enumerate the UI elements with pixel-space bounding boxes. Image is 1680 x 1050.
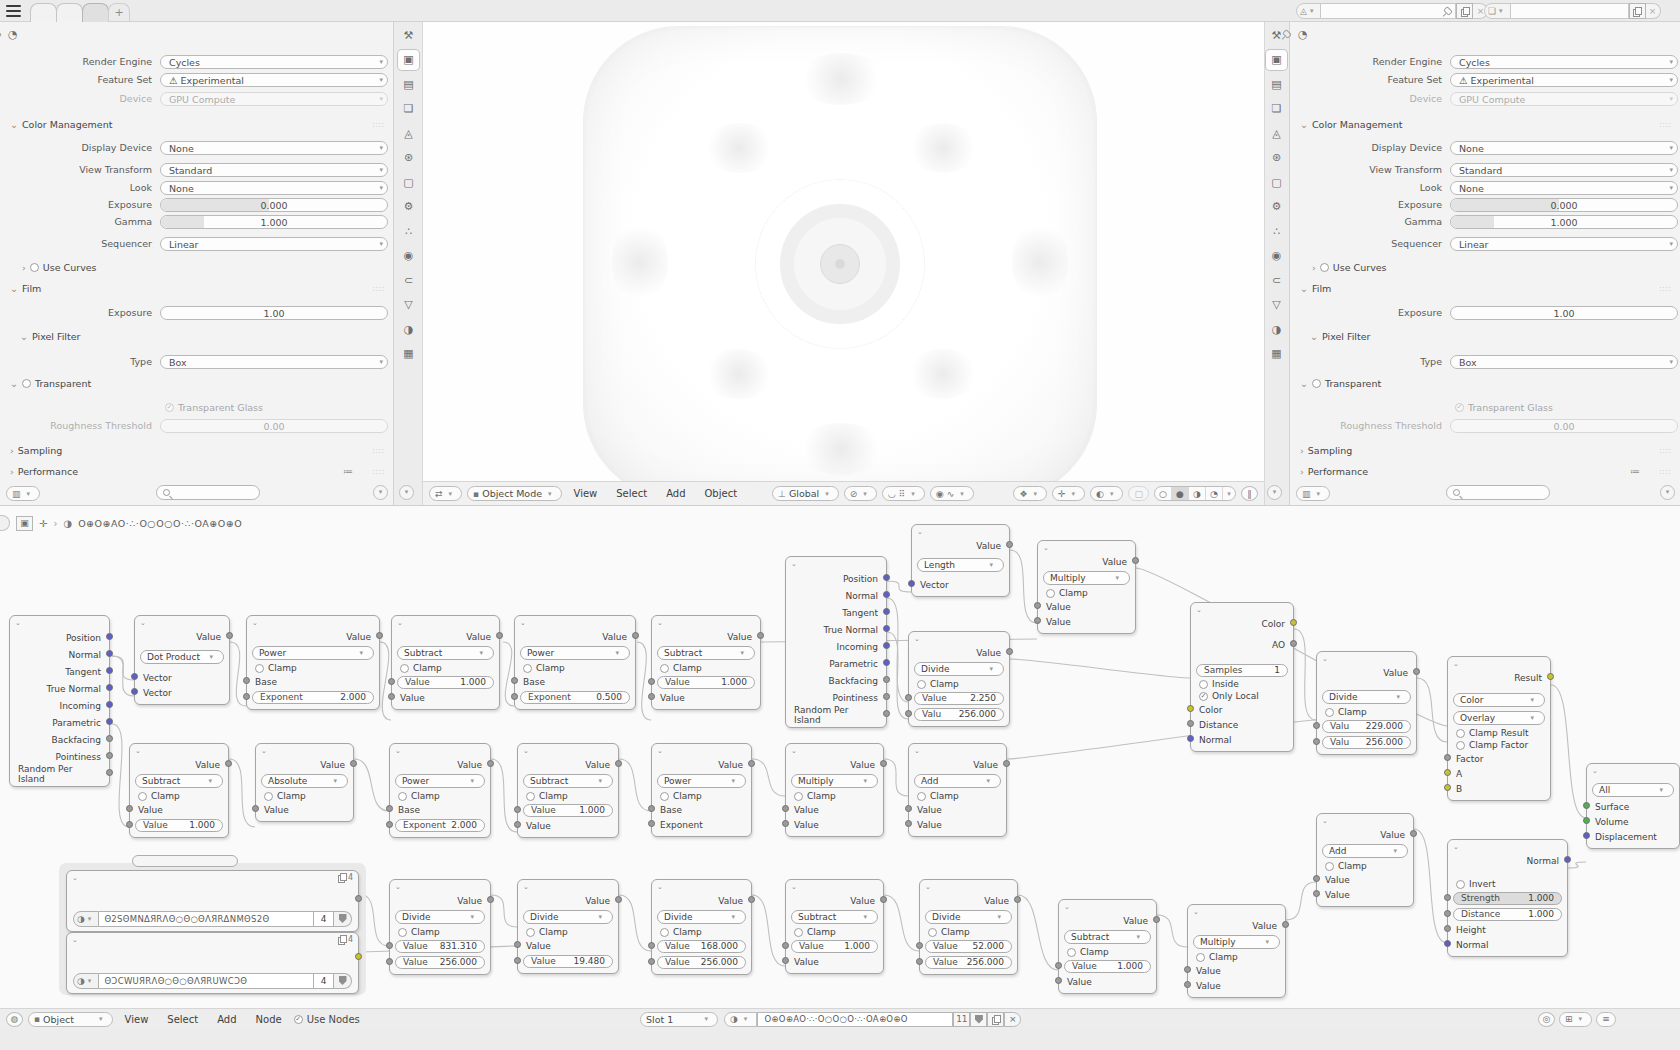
socket[interactable] (905, 694, 912, 701)
operation-dropdown[interactable]: Absolute▾ (261, 774, 348, 788)
options-button[interactable]: ≡ (1596, 1012, 1616, 1027)
checkbox[interactable] (1046, 589, 1055, 598)
checkbox[interactable] (526, 792, 535, 801)
checkbox[interactable] (1199, 680, 1208, 689)
section-header-color-management[interactable]: ⌄Color Management (1300, 119, 1402, 130)
socket[interactable] (648, 958, 655, 965)
collapse-chevron-icon[interactable]: ⌄ (523, 883, 529, 891)
user-count-badge[interactable]: 4 (314, 973, 334, 989)
socket[interactable] (1410, 830, 1417, 837)
section-header-transparent[interactable]: ⌄Transparent (10, 378, 91, 389)
operation-dropdown[interactable]: Subtract▾ (791, 910, 878, 924)
socket[interactable] (1187, 705, 1194, 712)
tab-object-data[interactable]: ▽ (1266, 295, 1287, 315)
value-field[interactable]: Value168.000 (657, 940, 746, 953)
checkbox[interactable] (138, 792, 147, 801)
section-header-sampling[interactable]: ›Sampling (1300, 445, 1352, 456)
socket[interactable] (1444, 925, 1451, 932)
socket[interactable] (350, 760, 357, 767)
operation-dropdown[interactable]: Subtract▾ (397, 646, 494, 660)
socket[interactable] (883, 625, 890, 632)
view-transform-field[interactable]: Standard▾ (1450, 163, 1678, 177)
collapse-chevron-icon[interactable]: ⌄ (72, 874, 78, 882)
proportional-group[interactable]: ◉∿▾ (930, 486, 974, 501)
use-curves-row[interactable]: ›Use Curves (22, 262, 97, 273)
socket[interactable] (1583, 832, 1590, 839)
pin-icon[interactable] (1282, 30, 1291, 39)
socket[interactable] (883, 659, 890, 666)
device-field[interactable]: GPU Compute▾ (1450, 92, 1678, 106)
collapse-chevron-icon[interactable]: ⌄ (1453, 843, 1459, 851)
operation-dropdown[interactable]: Length▾ (917, 558, 1004, 572)
node-header[interactable]: ⌄ (652, 880, 751, 893)
node-header[interactable]: ⌄4 (67, 933, 358, 946)
socket[interactable] (106, 769, 113, 776)
shading-options-chevron[interactable]: ▾ (1223, 487, 1235, 500)
display-device-field[interactable]: None▾ (1450, 141, 1678, 155)
socket[interactable] (1444, 754, 1451, 761)
collapse-chevron-icon[interactable]: ⌄ (1592, 767, 1598, 775)
math-node[interactable]: ⌄ValuePower▾ClampBaseExponent0.500 (514, 615, 636, 710)
material-name-field[interactable]: O⊕O⊕AO·∴·O○O○O·∴·OA⊕O⊕O (757, 1012, 953, 1027)
value-field[interactable]: Value1.000 (791, 940, 878, 953)
clamp-checkbox-row[interactable]: Clamp (515, 662, 635, 674)
socket[interactable] (1184, 966, 1191, 973)
operation-dropdown[interactable]: Power▾ (252, 646, 374, 660)
view-transform-field[interactable]: Standard▾ (160, 163, 388, 177)
socket[interactable] (106, 701, 113, 708)
tab-object[interactable]: ▢ (398, 172, 419, 192)
exposure-field[interactable]: 0.000 (160, 198, 388, 212)
tab-scene[interactable]: ◬ (1266, 123, 1287, 143)
workspace-tab-1[interactable] (30, 3, 57, 22)
bump-node[interactable]: ⌄NormalInvertStrength1.000Distance1.000H… (1447, 839, 1568, 957)
tab-scene[interactable]: ◬ (398, 123, 419, 143)
checkbox-row[interactable]: ✓Transparent Glass (1455, 402, 1553, 413)
value-field[interactable]: Valu256.000 (914, 708, 1004, 721)
collapse-chevron-icon[interactable]: ⌄ (15, 619, 21, 627)
math-node[interactable]: ⌄ValueMultiply▾ClampValueValue (1037, 540, 1136, 634)
operation-dropdown[interactable]: Add▾ (914, 774, 1001, 788)
viewport-3d[interactable]: ⇄▾ ▪Object Mode▾ View Select Add Object … (423, 22, 1264, 505)
value-field[interactable]: Strength1.000 (1453, 892, 1562, 905)
node-header[interactable]: ⌄ (515, 616, 635, 629)
menu-select[interactable]: Select (609, 488, 654, 499)
socket[interactable] (648, 805, 655, 812)
tab-output[interactable]: ▤ (398, 74, 419, 94)
hamburger-menu-icon[interactable] (6, 5, 21, 17)
value-field[interactable]: Value831.310 (395, 940, 485, 953)
gamma-field[interactable]: 1.000 (160, 215, 388, 229)
socket[interactable] (905, 805, 912, 812)
checkbox[interactable] (660, 928, 669, 937)
copy-view-layer-button[interactable] (1629, 3, 1646, 19)
operation-dropdown[interactable]: Power▾ (657, 774, 746, 788)
socket[interactable] (905, 710, 912, 717)
checkbox[interactable] (1067, 948, 1076, 957)
editor-type-button[interactable]: ▥▾ (6, 486, 40, 501)
socket[interactable] (782, 805, 789, 812)
socket[interactable] (106, 650, 113, 657)
node-header[interactable]: ⌄ (256, 744, 353, 757)
collapse-chevron-icon[interactable]: ⌄ (140, 619, 146, 627)
socket[interactable] (1187, 735, 1194, 742)
socket[interactable] (916, 958, 923, 965)
checkbox[interactable] (400, 664, 409, 673)
collapse-chevron-icon[interactable]: ⌄ (72, 936, 78, 944)
pivot-dropdown[interactable]: ⊘▾ (844, 486, 877, 501)
checkbox[interactable] (1196, 953, 1205, 962)
socket[interactable] (386, 942, 393, 949)
list-icon[interactable]: ≔ (343, 466, 353, 477)
math-node[interactable]: ⌄ValueDivide▾ClampValue831.310Value256.0… (389, 879, 491, 975)
tab-world[interactable]: ⊛ (1266, 148, 1287, 168)
socket[interactable] (1564, 856, 1571, 863)
collapse-chevron-icon[interactable]: ⌄ (520, 619, 526, 627)
node-header[interactable]: ⌄ (390, 880, 490, 893)
collapse-chevron-icon[interactable]: ⌄ (914, 635, 920, 643)
socket[interactable] (1313, 738, 1320, 745)
checkbox[interactable] (398, 792, 407, 801)
use-nodes-checkbox[interactable]: ✓Use Nodes (294, 1014, 360, 1025)
clamp-checkbox-row[interactable]: Clamp (1059, 946, 1156, 958)
editor-type-button[interactable]: ⇄▾ (429, 486, 462, 501)
value-field[interactable]: Distance1.000 (1453, 908, 1562, 921)
collapse-chevron-icon[interactable]: ⌄ (395, 883, 401, 891)
operation-dropdown[interactable]: Multiply▾ (1193, 935, 1280, 949)
operation-dropdown[interactable]: Divide▾ (1322, 690, 1411, 704)
gizmos-button[interactable]: ✛▾ (1052, 486, 1085, 501)
socket[interactable] (386, 805, 393, 812)
snap-group[interactable]: ◡⠿▾ (882, 486, 925, 501)
collapse-chevron-icon[interactable]: ⌄ (925, 883, 931, 891)
section-header-pixel-filter[interactable]: ⌄Pixel Filter (20, 331, 81, 342)
node-header[interactable]: ⌄ (1059, 900, 1156, 913)
math-node[interactable]: ⌄ValueAbsolute▾ClampValue (255, 743, 354, 822)
checkbox[interactable]: ✓ (1455, 403, 1464, 412)
clamp-checkbox-row[interactable]: Clamp Factor (1448, 739, 1550, 751)
operation-dropdown[interactable]: Overlay▾ (1453, 711, 1545, 725)
socket[interactable] (1282, 921, 1289, 928)
socket[interactable] (648, 820, 655, 827)
socket[interactable] (782, 942, 789, 949)
socket[interactable] (514, 941, 521, 948)
clamp-checkbox-row[interactable]: Clamp (786, 926, 883, 938)
socket[interactable] (131, 688, 138, 695)
node-header[interactable]: ⌄ (1188, 905, 1285, 918)
node-header[interactable]: ⌄ (909, 632, 1009, 645)
exposure-field[interactable]: 0.000 (1450, 198, 1678, 212)
socket[interactable] (226, 632, 233, 639)
collapse-chevron-icon[interactable]: ⌄ (1064, 903, 1070, 911)
section-header-sampling[interactable]: ›Sampling (10, 445, 62, 456)
node-header[interactable]: ⌄ (786, 880, 883, 893)
value-field[interactable]: Value256.000 (657, 956, 746, 969)
datablock-name-field[interactable]: ΘƆCWUЯRΛΘ○Θ○ΘΛЯRUWCƆΘ (99, 973, 314, 989)
checkbox[interactable] (928, 928, 937, 937)
socket[interactable] (1547, 673, 1554, 680)
socket[interactable] (1014, 896, 1021, 903)
socket[interactable] (386, 958, 393, 965)
checkbox[interactable] (1456, 729, 1465, 738)
socket[interactable] (1184, 981, 1191, 988)
socket[interactable] (106, 735, 113, 742)
socket[interactable] (106, 633, 113, 640)
socket[interactable] (880, 896, 887, 903)
node-header[interactable]: ⌄ (130, 744, 228, 757)
section-checkbox[interactable] (1312, 379, 1321, 388)
node-header[interactable]: ⌄ (390, 744, 490, 757)
node-header[interactable]: ⌄ (920, 880, 1017, 893)
node-header[interactable]: ⌄ (1587, 764, 1679, 777)
socket[interactable] (487, 760, 494, 767)
socket[interactable] (1583, 802, 1590, 809)
shader-context-dropdown[interactable]: ▪Object▾ (28, 1012, 113, 1027)
copy-scene-button[interactable] (1456, 3, 1473, 19)
panel-options-button[interactable]: ▾ (373, 485, 388, 500)
socket[interactable] (883, 642, 890, 649)
menu-view[interactable]: View (567, 488, 605, 499)
operation-dropdown[interactable]: Divide▾ (395, 910, 485, 924)
collapse-chevron-icon[interactable]: ⌄ (1453, 660, 1459, 668)
socket[interactable] (1444, 910, 1451, 917)
socket[interactable] (1006, 541, 1013, 548)
node-header[interactable]: ⌄ (652, 744, 751, 757)
socket[interactable] (1006, 648, 1013, 655)
collapse-chevron-icon[interactable]: ⌄ (657, 619, 663, 627)
value-field[interactable]: Value19.480 (523, 955, 613, 968)
snap-button[interactable]: ◎ (1538, 1012, 1555, 1027)
socket[interactable] (487, 896, 494, 903)
operation-dropdown[interactable]: All▾ (1592, 783, 1674, 797)
clamp-checkbox-row[interactable]: Clamp (1188, 951, 1285, 963)
shader-node-editor[interactable]: ▣ ✛ › ◑ O⊕O⊕AO·∴·O○O○O·∴·OA⊕O⊕O ⌄Positio… (0, 505, 1680, 1029)
socket[interactable] (883, 693, 890, 700)
socket[interactable] (1444, 784, 1451, 791)
pin-icon[interactable] (1443, 7, 1452, 16)
socket[interactable] (1313, 722, 1320, 729)
section-header-performance[interactable]: ›Performance (1300, 466, 1368, 477)
math-node[interactable]: ⌄ValueDivide▾ClampValue168.000Value256.0… (651, 879, 752, 975)
socket[interactable] (883, 710, 890, 717)
node-header[interactable]: ⌄ (786, 557, 886, 570)
value-field[interactable]: Value52.000 (925, 940, 1012, 953)
clamp-checkbox-row[interactable]: ✓Only Local (1191, 690, 1293, 702)
scene-name-field[interactable] (1321, 3, 1456, 19)
scene-selector[interactable]: ◬▾ × (1296, 3, 1488, 19)
node-header[interactable]: ⌄ (392, 616, 499, 629)
socket[interactable] (1290, 619, 1297, 626)
socket[interactable] (1444, 769, 1451, 776)
tab-modifiers[interactable]: ⚙ (398, 197, 419, 217)
clamp-checkbox-row[interactable]: Clamp (652, 662, 760, 674)
clamp-checkbox-row[interactable]: Clamp (1317, 706, 1416, 718)
checkbox[interactable] (1325, 708, 1334, 717)
checkbox[interactable] (526, 928, 535, 937)
math-node[interactable]: ⌄ValueMultiply▾ClampValueValue (1187, 904, 1286, 998)
collapse-chevron-icon[interactable]: ⌄ (914, 747, 920, 755)
operation-dropdown[interactable]: Power▾ (395, 774, 485, 788)
socket[interactable] (748, 896, 755, 903)
checkbox[interactable] (264, 792, 273, 801)
feature-set-field[interactable]: ⚠ Experimental▾ (160, 73, 388, 87)
tab-material[interactable]: ◑ (398, 319, 419, 339)
tab-world[interactable]: ⊛ (398, 148, 419, 168)
math-node[interactable]: ⌄ValuePower▾ClampBaseExponent (651, 743, 752, 837)
geometry-node[interactable]: ⌄PositionNormalTangentTrue NormalIncomin… (9, 615, 110, 787)
tab-object-data[interactable]: ▽ (398, 295, 419, 315)
clamp-checkbox-row[interactable]: Clamp (390, 926, 490, 938)
socket[interactable] (514, 821, 521, 828)
clamp-checkbox-row[interactable]: Clamp (1317, 860, 1413, 872)
operation-dropdown[interactable]: Divide▾ (523, 910, 613, 924)
socket[interactable] (1055, 977, 1062, 984)
value-field[interactable]: Value1.000 (135, 819, 223, 832)
menu-view[interactable]: View (118, 1014, 156, 1025)
node-header[interactable]: ⌄ (247, 616, 379, 629)
operation-dropdown[interactable]: Multiply▾ (1043, 571, 1130, 585)
socket[interactable] (131, 673, 138, 680)
socket[interactable] (1034, 602, 1041, 609)
socket[interactable] (243, 693, 250, 700)
operation-dropdown[interactable]: Multiply▾ (791, 774, 878, 788)
node-header[interactable]: ⌄ (786, 744, 883, 757)
clamp-checkbox-row[interactable]: Clamp (390, 790, 490, 802)
node-header[interactable]: ⌄ (652, 616, 760, 629)
section-header-performance[interactable]: ›Performance (10, 466, 78, 477)
checkbox[interactable] (1456, 880, 1465, 889)
ambient-occlusion-node[interactable]: ⌄ColorAOSamples1Inside✓Only LocalColorDi… (1190, 602, 1294, 752)
node-canvas[interactable]: ⌄PositionNormalTangentTrue NormalIncomin… (0, 506, 1680, 1009)
mix-color-node[interactable]: ⌄ResultColor▾Overlay▾Clamp ResultClamp F… (1447, 656, 1551, 801)
socket[interactable] (511, 677, 518, 684)
socket[interactable] (1444, 894, 1451, 901)
value-field[interactable]: Exponent2.000 (252, 691, 374, 704)
node-header[interactable]: ⌄ (135, 616, 229, 629)
collapse-chevron-icon[interactable]: ⌄ (523, 747, 529, 755)
value-field[interactable]: Value1.000 (523, 804, 613, 817)
checkbox[interactable] (794, 928, 803, 937)
view-layer-selector[interactable]: ❏▾ × (1484, 3, 1661, 19)
section-header-film[interactable]: ⌄Film (1300, 283, 1331, 294)
node-header[interactable]: ⌄ (1191, 603, 1293, 616)
math-node[interactable]: ⌄ValueSubtract▾ClampValue1.000Value (391, 615, 500, 710)
section-header-film[interactable]: ⌄Film (10, 283, 41, 294)
checkbox[interactable]: ✓ (165, 403, 174, 412)
socket[interactable] (1187, 720, 1194, 727)
operation-dropdown[interactable]: Divide▾ (914, 662, 1004, 676)
pause-button[interactable]: ‖ (1241, 486, 1258, 501)
socket[interactable] (908, 580, 915, 587)
socket[interactable] (1583, 817, 1590, 824)
value-field[interactable]: Value1.000 (1064, 960, 1151, 973)
shading-rendered-button[interactable]: ◔ (1206, 487, 1223, 500)
gamma-field[interactable]: 1.000 (1450, 215, 1678, 229)
clamp-checkbox-row[interactable]: Clamp (652, 926, 751, 938)
device-field[interactable]: GPU Compute▾ (160, 92, 388, 106)
tab-render[interactable]: ▣ (1266, 50, 1287, 70)
roughness-threshold-field[interactable]: 0.00 (1450, 419, 1678, 433)
image-datablock-node[interactable]: ⌄4◑▾ΘƆCWUЯRΛΘ○Θ○ΘΛЯRUWCƆΘ4 (66, 932, 359, 994)
editor-type-button[interactable]: ◍ (6, 1012, 23, 1027)
strip-collapse-button[interactable]: ▾ (1267, 485, 1282, 500)
clamp-checkbox-row[interactable]: Clamp (652, 790, 751, 802)
clamp-checkbox-row[interactable]: Clamp (920, 926, 1017, 938)
socket[interactable] (225, 760, 232, 767)
checkbox[interactable] (255, 664, 264, 673)
node-header[interactable]: ⌄ (10, 616, 109, 629)
image-datablock-node[interactable]: ⌄4◑▾Θ2SΘMNΔЯRΛΘ○Θ○ΘΛЯRΔNMΘS2Θ4 (66, 870, 359, 932)
socket[interactable] (782, 957, 789, 964)
node-header[interactable]: ⌄ (518, 744, 618, 757)
collapse-chevron-icon[interactable]: ⌄ (657, 883, 663, 891)
value-field[interactable]: Exponent2.000 (395, 819, 485, 832)
tab-object[interactable]: ▢ (1266, 172, 1287, 192)
shading-wireframe-button[interactable]: ○ (1155, 487, 1172, 500)
render-engine-field[interactable]: Cycles▾ (160, 55, 388, 69)
socket[interactable] (1132, 557, 1139, 564)
math-node[interactable]: ⌄ValueAdd▾ClampValueValue (1316, 813, 1414, 907)
clamp-checkbox-row[interactable]: Clamp (909, 678, 1009, 690)
socket[interactable] (883, 676, 890, 683)
socket[interactable] (1153, 916, 1160, 923)
value-field[interactable]: Valu256.000 (1322, 736, 1411, 749)
math-node[interactable]: ⌄ValueSubtract▾ClampValue1.000Value (651, 615, 761, 710)
clamp-checkbox-row[interactable]: Inside (1191, 678, 1293, 690)
collapse-chevron-icon[interactable]: ⌄ (917, 528, 923, 536)
value-field[interactable]: Exponent0.500 (520, 691, 630, 704)
add-workspace-tab[interactable]: + (108, 3, 130, 22)
menu-select[interactable]: Select (160, 1014, 205, 1025)
type-field[interactable]: Box▾ (160, 355, 388, 369)
tab-modifiers[interactable]: ⚙ (1266, 197, 1287, 217)
clamp-checkbox-row[interactable]: Clamp (256, 790, 353, 802)
collapse-chevron-icon[interactable]: ⌄ (657, 747, 663, 755)
socket[interactable] (880, 760, 887, 767)
clamp-checkbox-row[interactable]: Invert (1448, 878, 1567, 890)
fake-user-button[interactable] (970, 1012, 987, 1027)
tab-tool[interactable]: ⚒ (398, 25, 419, 45)
socket[interactable] (757, 632, 764, 639)
socket[interactable] (1290, 640, 1297, 647)
socket[interactable] (748, 760, 755, 767)
math-node[interactable]: ⌄ValueDivide▾ClampValu229.000Valu256.000 (1316, 651, 1417, 755)
socket[interactable] (648, 693, 655, 700)
collapse-chevron-icon[interactable]: ⌄ (1196, 606, 1202, 614)
math-node[interactable]: ⌄ValueSubtract▾ClampValue1.000Value (785, 879, 884, 974)
node-header[interactable]: ⌄ (909, 744, 1006, 757)
node-header[interactable]: ⌄ (912, 525, 1009, 538)
socket[interactable] (376, 632, 383, 639)
node-header[interactable]: ⌄ (518, 880, 618, 893)
socket[interactable] (243, 677, 250, 684)
socket[interactable] (1055, 962, 1062, 969)
checkbox[interactable] (917, 680, 926, 689)
unlink-material-button[interactable]: × (1004, 1012, 1021, 1027)
clamp-checkbox-row[interactable]: Clamp (786, 790, 883, 802)
roughness-threshold-field[interactable]: 0.00 (160, 419, 388, 433)
checkbox[interactable] (660, 664, 669, 673)
shading-material-button[interactable]: ◑ (1189, 487, 1206, 500)
value-field[interactable]: Value2.250 (914, 692, 1004, 705)
menu-add[interactable]: Add (659, 488, 692, 499)
strip-collapse-button[interactable]: ▾ (399, 485, 414, 500)
vector-math-node[interactable]: ⌄ValueLength▾Vector (911, 524, 1010, 597)
operation-dropdown[interactable]: Color▾ (1453, 693, 1545, 707)
type-field[interactable]: Box▾ (1450, 355, 1678, 369)
math-node[interactable]: ⌄ValueSubtract▾ClampValue1.000Value (517, 743, 619, 838)
pin-icon[interactable] (0, 30, 1, 39)
